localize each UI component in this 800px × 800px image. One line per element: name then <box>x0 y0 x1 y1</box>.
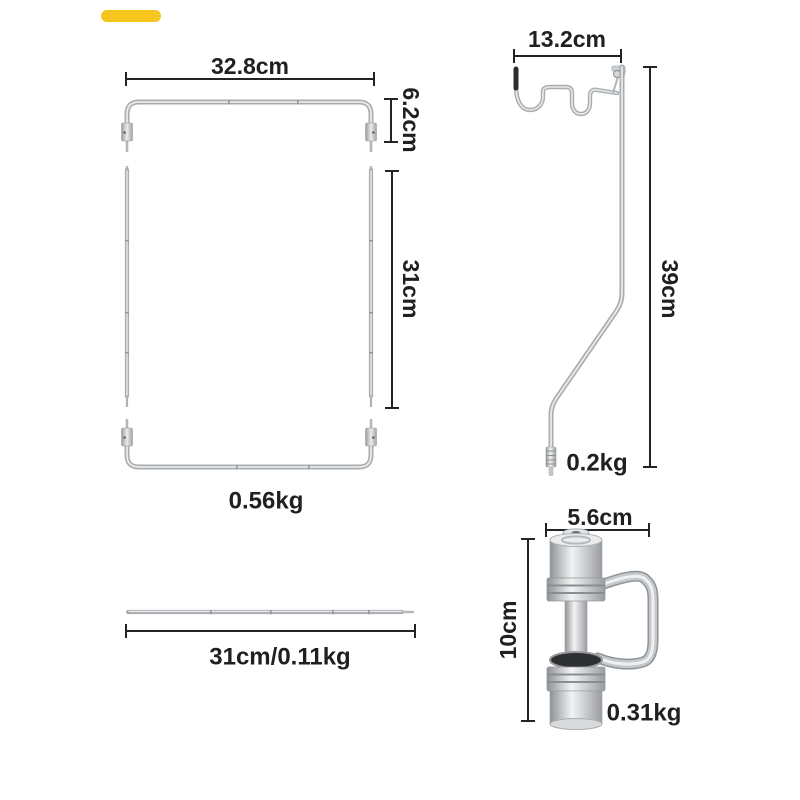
lantern-pole-part: 13.2cm 0.2kg 39cm <box>514 26 683 476</box>
yellow-highlight-marker <box>101 10 161 22</box>
right-bottom-connector-screw <box>372 436 375 439</box>
left-connector-screw <box>123 131 126 134</box>
left-bottom-connector-block <box>122 428 133 446</box>
rail-length-dimension-line <box>385 171 399 408</box>
clamp-bottom-cylinder-base <box>550 719 602 730</box>
right-bottom-connector-block <box>366 428 377 446</box>
frame-top-bar-tube-highlight <box>127 102 371 134</box>
pole-height-dimension-line <box>643 67 657 467</box>
pole-clamp-part: 5.6cm 10cm <box>495 504 681 729</box>
rail-joint-mark <box>369 312 373 314</box>
frame-bottom-bar-highlight <box>127 440 371 467</box>
lantern-hook-highlight <box>516 86 617 114</box>
frame-top-height-dimension-line <box>384 99 398 142</box>
rail-joint-mark <box>125 352 129 354</box>
rail-joint-mark <box>369 352 373 354</box>
pole-tube-highlight <box>551 67 622 447</box>
right-connector-screw <box>372 131 375 134</box>
rail-joint-mark <box>369 240 373 242</box>
clamp-weight-label: 0.31kg <box>607 699 682 726</box>
clamp-width-label: 5.6cm <box>567 504 632 530</box>
rail-joint-mark <box>125 312 129 314</box>
frame-top-bar-part: 32.8cm 6.2cm <box>122 53 424 153</box>
rail-length-label: 31cm <box>398 260 424 319</box>
pole-weight-label: 0.2kg <box>566 449 627 476</box>
pole-tip-pin <box>549 467 554 476</box>
pole-height-label: 39cm <box>657 260 683 319</box>
rod-joint-mark <box>332 610 334 614</box>
tube-joint-mark <box>228 100 230 105</box>
product-dimension-diagram: 32.8cm 6.2cm <box>0 0 800 800</box>
left-connector-block <box>122 123 133 141</box>
left-bottom-connector-screw <box>123 436 126 439</box>
tube-joint-mark <box>308 465 310 470</box>
clamp-top-ribs <box>547 578 605 601</box>
clamp-black-pad <box>550 652 602 668</box>
rod-joint-mark <box>270 610 272 614</box>
clamp-bottom-ribs <box>547 667 605 691</box>
pole-top-screw-knob <box>614 71 621 78</box>
frame-top-width-label: 32.8cm <box>211 53 289 79</box>
rod-joint-mark <box>210 610 212 614</box>
frame-top-bar-tube <box>127 102 371 134</box>
cross-rod-dimension-line <box>126 624 415 638</box>
right-connector-block <box>366 123 377 141</box>
rod-joint-mark <box>368 610 370 614</box>
clamp-height-label: 10cm <box>495 601 521 660</box>
side-rails-part: 31cm <box>125 166 424 408</box>
tube-joint-mark <box>297 100 299 105</box>
frame-bottom-bar-tube <box>127 440 371 467</box>
cross-rod-part: 31cm/0.11kg <box>126 610 415 670</box>
rail-joint-mark <box>125 240 129 242</box>
frame-weight-label: 0.56kg <box>229 487 304 514</box>
cross-rod-spec-label: 31cm/0.11kg <box>209 643 350 670</box>
diagram-svg: 32.8cm 6.2cm <box>0 0 800 800</box>
tube-joint-mark <box>236 465 238 470</box>
hook-width-label: 13.2cm <box>528 26 606 52</box>
clamp-height-dimension-line <box>521 539 535 721</box>
frame-bottom-bar-part: 0.56kg <box>122 419 377 514</box>
frame-top-height-label: 6.2cm <box>398 87 424 152</box>
clamp-handle <box>598 576 653 664</box>
clamp-center-column <box>565 600 587 658</box>
